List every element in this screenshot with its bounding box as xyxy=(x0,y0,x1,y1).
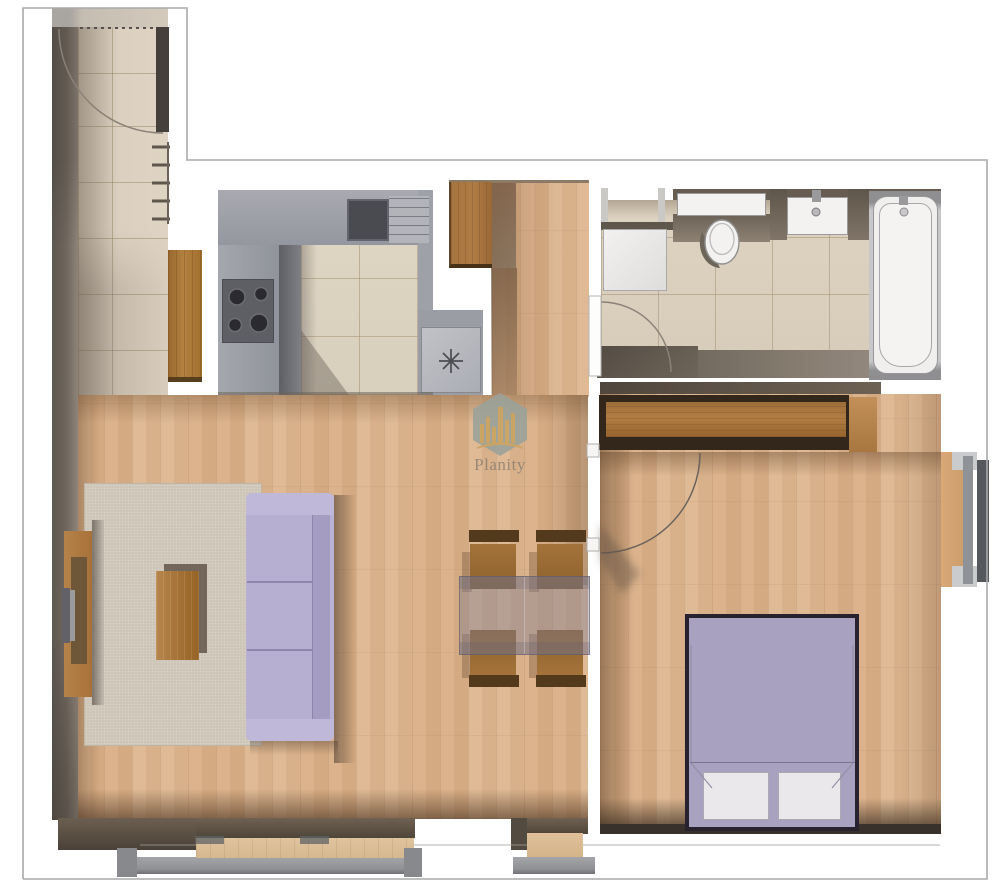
svg-text:Planity: Planity xyxy=(474,455,526,474)
